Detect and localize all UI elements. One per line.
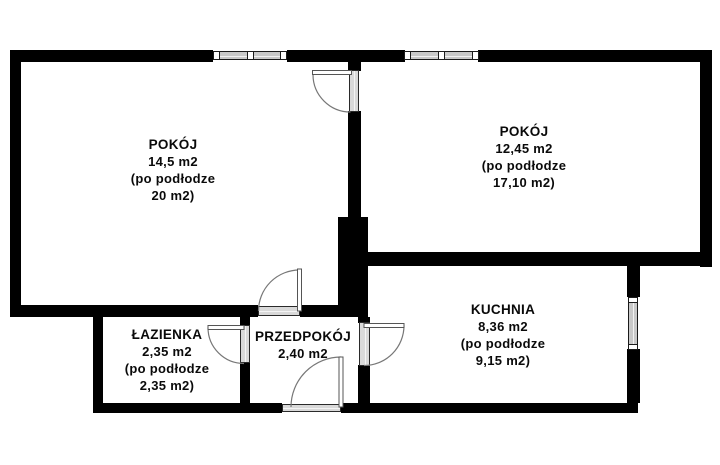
wall-right-outer	[700, 50, 712, 267]
door-arc-entrance	[291, 357, 341, 407]
room-floor-note-1: (po podłodze	[434, 157, 614, 174]
wall-kitchen-right-upper	[627, 266, 640, 297]
window-room1-cap-right	[280, 51, 287, 60]
room-label-pokoj-right: POKÓJ 12,45 m2 (po podłodze 17,10 m2)	[434, 123, 614, 191]
wall-middle-divider-upper	[348, 111, 361, 217]
room-area: 8,36 m2	[413, 318, 593, 335]
wall-top-right-segment	[478, 50, 712, 62]
window-room1-cap-mid	[247, 51, 254, 60]
room-area: 2,40 m2	[223, 345, 383, 362]
door-leaf-entrance	[339, 357, 343, 407]
window-room2-cap-left	[404, 51, 411, 60]
door-arc-room1-hall	[259, 270, 300, 311]
door-leaf-kitchen	[364, 324, 404, 328]
door-frame-rooms-divider	[349, 70, 359, 112]
room-label-przedpokoj: PRZEDPOKÓJ 2,40 m2	[223, 328, 383, 362]
wall-kitchen-right-lower	[627, 349, 640, 403]
wall-top-middle-segment	[287, 50, 405, 62]
wall-kitchen-top	[364, 252, 712, 266]
room-floor-note-1: (po podłodze	[413, 335, 593, 352]
window-room1-cap-left	[213, 51, 220, 60]
room-area: 12,45 m2	[434, 140, 614, 157]
window-room2-cap-right	[472, 51, 479, 60]
door-arc-rooms-divider	[313, 75, 351, 113]
wall-bottom-right-segment	[341, 403, 638, 413]
room-floor-note-2: 17,10 m2)	[434, 174, 614, 191]
window-kitchen-right	[628, 297, 638, 350]
window-room2-cap-mid	[438, 51, 445, 60]
room-name: PRZEDPOKÓJ	[223, 328, 383, 345]
door-frame-room1-hall	[258, 306, 300, 316]
wall-room1-bottom-b	[300, 305, 338, 317]
wall-top-left-segment	[10, 50, 213, 62]
room-label-kuchnia: KUCHNIA 8,36 m2 (po podłodze 9,15 m2)	[413, 301, 593, 369]
door-frame-entrance	[282, 404, 341, 412]
room-name: POKÓJ	[434, 123, 614, 140]
door-leaf-rooms-divider	[313, 71, 352, 75]
wall-hall-right-lower	[358, 365, 370, 403]
room-floor-note-2: 2,35 m2)	[77, 377, 257, 394]
room-area: 14,5 m2	[83, 153, 263, 170]
window-kitchen-cap-top	[628, 297, 638, 303]
wall-middle-divider-block	[338, 217, 368, 317]
floor-plan: POKÓJ 14,5 m2 (po podłodze 20 m2) POKÓJ …	[0, 0, 720, 465]
room-floor-note-1: (po podłodze	[83, 170, 263, 187]
room-floor-note-2: 9,15 m2)	[413, 352, 593, 369]
room-name: KUCHNIA	[413, 301, 593, 318]
wall-room1-bottom-a	[10, 305, 258, 317]
room-name: POKÓJ	[83, 136, 263, 153]
room-floor-note-1: (po podłodze	[77, 360, 257, 377]
room-label-pokoj-left: POKÓJ 14,5 m2 (po podłodze 20 m2)	[83, 136, 263, 204]
room-floor-note-2: 20 m2)	[83, 187, 263, 204]
wall-left-outer	[10, 50, 21, 317]
window-kitchen-cap-bottom	[628, 344, 638, 350]
wall-bottom-left-segment	[93, 403, 282, 413]
